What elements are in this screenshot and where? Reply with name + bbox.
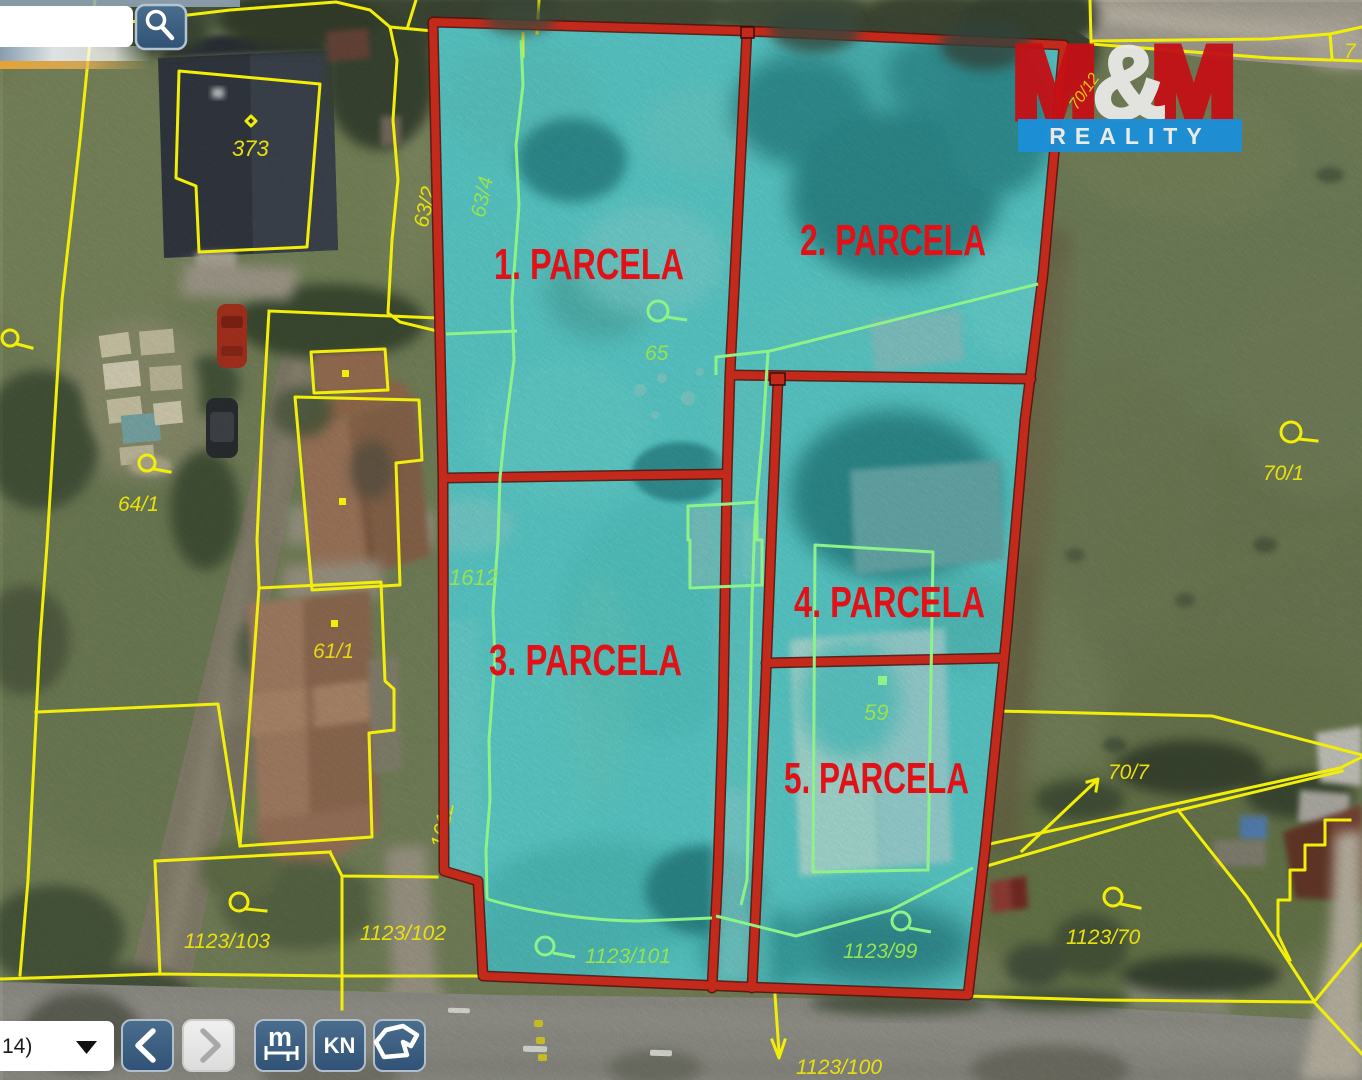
svg-text:1123/102: 1123/102 [360, 922, 446, 945]
svg-text:59: 59 [864, 700, 888, 725]
svg-text:3. PARCELA: 3. PARCELA [489, 636, 682, 685]
svg-text:m: m [268, 1022, 292, 1052]
svg-text:2. PARCELA: 2. PARCELA [800, 216, 986, 265]
svg-text:7: 7 [1344, 40, 1357, 63]
svg-text:1123/99: 1123/99 [843, 940, 918, 963]
svg-text:1. PARCELA: 1. PARCELA [494, 240, 684, 289]
svg-text:5. PARCELA: 5. PARCELA [784, 754, 969, 803]
svg-text:70/1: 70/1 [1263, 462, 1304, 485]
svg-text:1123/100: 1123/100 [796, 1056, 882, 1079]
svg-text:4. PARCELA: 4. PARCELA [794, 578, 985, 627]
svg-text:373: 373 [232, 136, 269, 161]
svg-text:REALITY: REALITY [1049, 123, 1210, 149]
svg-text:14): 14) [2, 1035, 32, 1058]
svg-text:KN: KN [324, 1033, 356, 1058]
svg-text:1123/70: 1123/70 [1066, 926, 1141, 949]
svg-text:61/1: 61/1 [313, 640, 354, 663]
svg-text:1123/103: 1123/103 [184, 930, 270, 953]
svg-text:1123/101: 1123/101 [585, 945, 671, 968]
svg-text:64/1: 64/1 [118, 493, 159, 516]
svg-text:1612: 1612 [449, 565, 498, 590]
svg-text:70/7: 70/7 [1108, 761, 1150, 784]
svg-text:65: 65 [645, 342, 669, 365]
